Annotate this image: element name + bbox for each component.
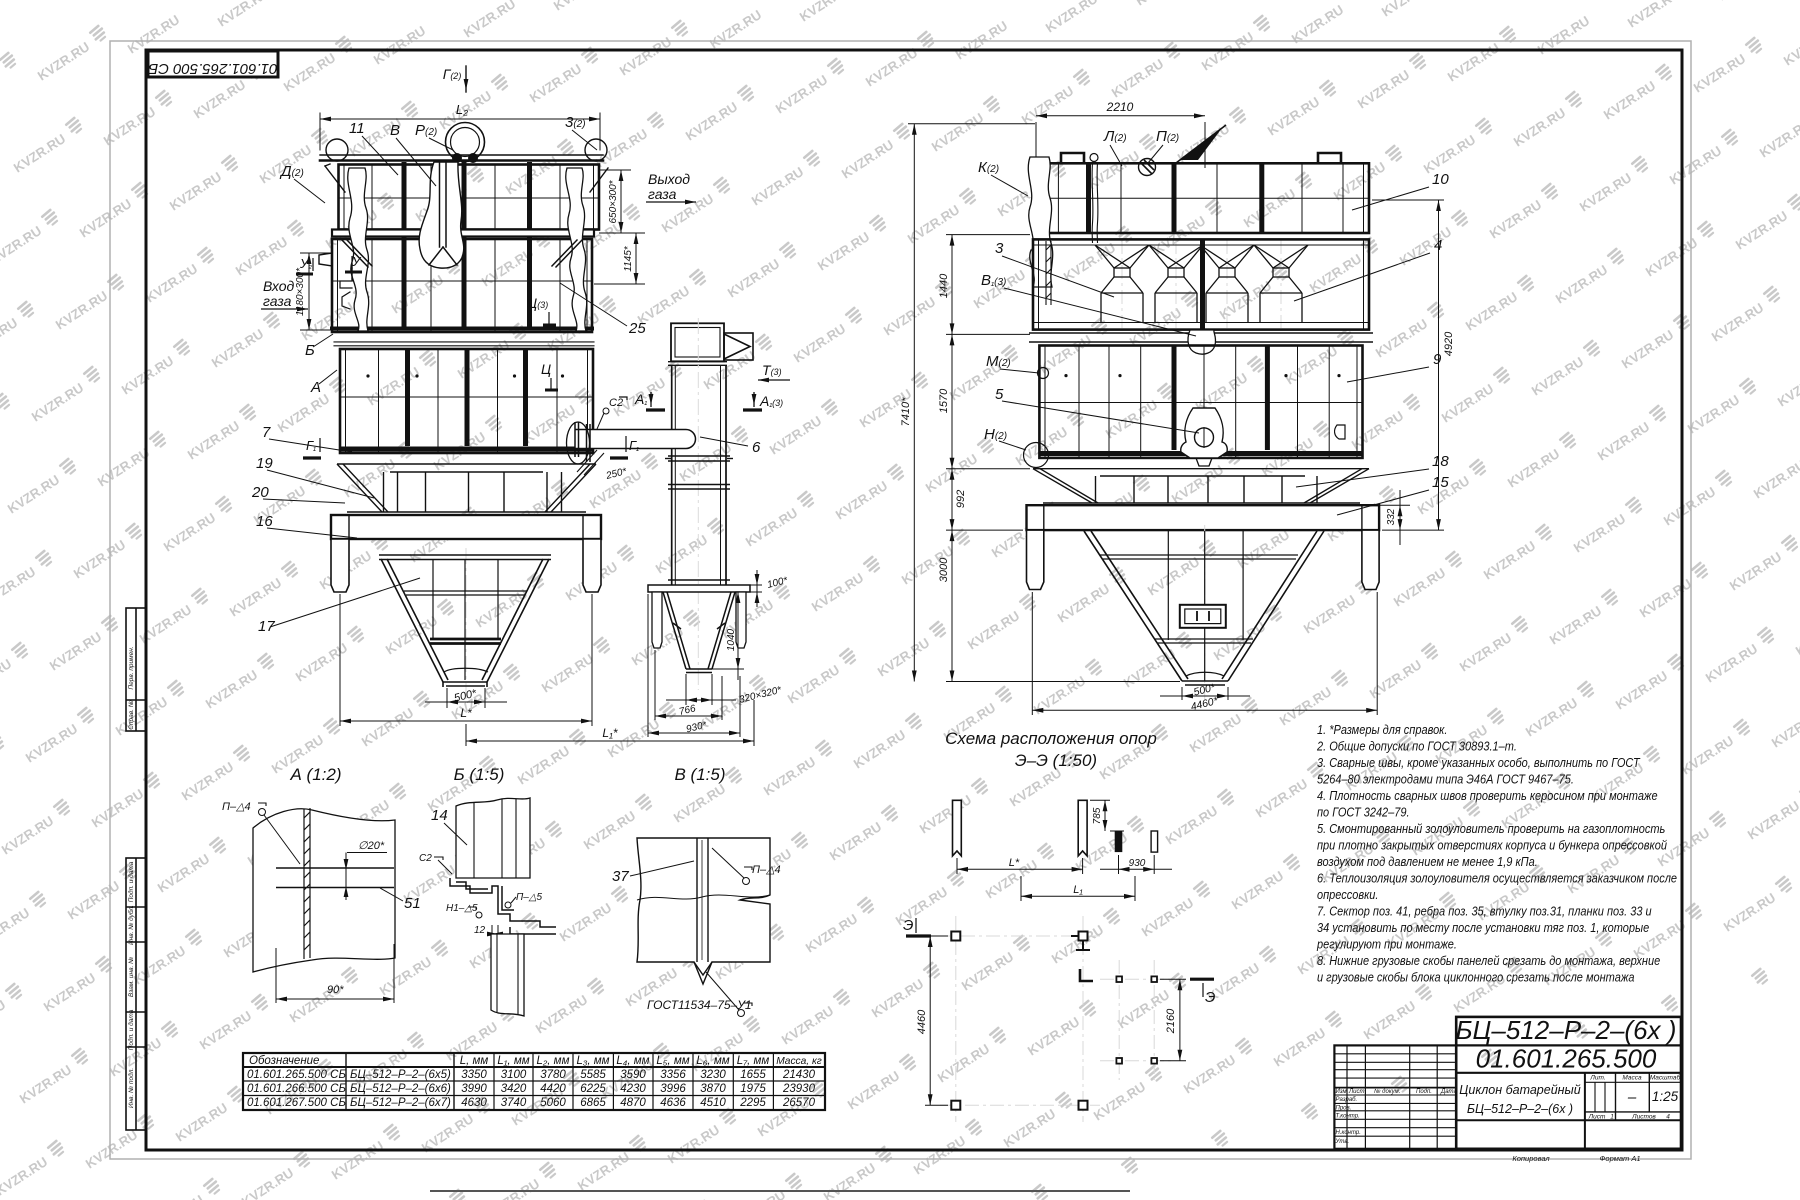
svg-text:3996: 3996 (660, 1083, 686, 1095)
svg-text:Э: Э (903, 917, 913, 934)
svg-text:650×300*: 650×300* (608, 179, 619, 223)
svg-text:L₂: L₂ (456, 102, 468, 117)
svg-text:∅20*: ∅20* (358, 840, 385, 852)
svg-text:Вход: Вход (263, 278, 295, 294)
svg-text:Справ. №: Справ. № (128, 700, 135, 730)
svg-text:№ докум.: № докум. (1374, 1088, 1400, 1095)
svg-text:01.601.265.500 СБ: 01.601.265.500 СБ (247, 1069, 346, 1081)
svg-text:Масса: Масса (1622, 1075, 1642, 1082)
svg-text:при плотно закрытых отверстиях: при плотно закрытых отверстиях корпуса и… (1317, 838, 1667, 853)
svg-text:5264–80 электродами типа Э46А: 5264–80 электродами типа Э46А ГОСТ 9467–… (1317, 772, 1574, 787)
svg-text:26570: 26570 (782, 1097, 816, 1109)
svg-text:3350: 3350 (461, 1069, 487, 1081)
svg-text:01.601.266.500 СБ: 01.601.266.500 СБ (247, 1083, 346, 1095)
svg-text:3356: 3356 (660, 1069, 686, 1081)
svg-text:9: 9 (1433, 351, 1442, 368)
svg-text:Подп. и дата: Подп. и дата (127, 1009, 135, 1050)
svg-text:Б (1:5): Б (1:5) (454, 765, 505, 784)
svg-text:4920: 4920 (1443, 331, 1455, 356)
svg-text:Схема расположения опор: Схема расположения опор (945, 729, 1157, 748)
svg-text:Копировал: Копировал (1512, 1154, 1550, 1163)
svg-text:4230: 4230 (620, 1083, 646, 1095)
svg-text:Разраб.: Разраб. (1336, 1097, 1358, 1103)
svg-text:БЦ–512–Р–2–(6х7): БЦ–512–Р–2–(6х7) (350, 1097, 451, 1109)
svg-text:2295: 2295 (739, 1097, 766, 1109)
svg-text:L₄, мм: L₄, мм (616, 1055, 649, 1067)
svg-text:Инв. № дубл.: Инв. № дубл. (127, 905, 135, 945)
svg-text:1570: 1570 (938, 388, 950, 413)
svg-text:5: 5 (995, 386, 1004, 403)
svg-text:7: 7 (262, 424, 271, 441)
svg-text:18: 18 (1432, 453, 1449, 470)
svg-text:12: 12 (474, 925, 486, 936)
svg-text:25: 25 (628, 320, 646, 337)
svg-text:4. Плотность сварных швов про: 4. Плотность сварных швов проверить керо… (1317, 788, 1658, 803)
svg-text:21430: 21430 (782, 1069, 816, 1081)
svg-text:19: 19 (256, 455, 273, 472)
svg-text:П–△4: П–△4 (222, 801, 251, 813)
svg-text:5. Смонтированный золоуловите: 5. Смонтированный золоуловитель проверит… (1317, 821, 1665, 836)
svg-text:20: 20 (251, 484, 269, 501)
svg-text:3. Сварные швы, кроме указанн: 3. Сварные швы, кроме указанных особо, в… (1317, 755, 1640, 770)
svg-text:332: 332 (1386, 508, 1397, 525)
svg-text:газа: газа (648, 186, 677, 202)
svg-text:14: 14 (431, 807, 448, 824)
svg-text:регулируют при монтаже.: регулируют при монтаже. (1316, 937, 1457, 952)
svg-text:3: 3 (995, 240, 1004, 257)
svg-text:Лист: Лист (1588, 1114, 1606, 1121)
svg-text:2160: 2160 (1165, 1008, 1177, 1034)
svg-text:1145*: 1145* (623, 245, 634, 272)
svg-text:Подп. и дата: Подп. и дата (127, 861, 135, 902)
svg-text:А (1:2): А (1:2) (289, 765, 341, 784)
svg-text:4510: 4510 (700, 1097, 726, 1109)
svg-text:Дата: Дата (1440, 1089, 1457, 1095)
svg-text:С2: С2 (609, 397, 623, 409)
svg-text:ГОСТ11534–75–У1: ГОСТ11534–75–У1 (647, 998, 752, 1012)
svg-text:L₃, мм: L₃, мм (576, 1055, 609, 1067)
svg-text:Масштаб: Масштаб (1650, 1074, 1681, 1082)
svg-text:А: А (310, 379, 321, 396)
svg-text:6. Теплоизоляция золоуловител: 6. Теплоизоляция золоуловителя осуществл… (1317, 871, 1677, 886)
svg-text:1: 1 (1610, 1114, 1614, 1121)
svg-text:3590: 3590 (620, 1069, 646, 1081)
svg-text:Б: Б (305, 342, 315, 359)
svg-text:L₆, мм: L₆, мм (696, 1055, 729, 1067)
svg-text:БЦ–512–Р–2–(6х6): БЦ–512–Р–2–(6х6) (350, 1083, 451, 1095)
svg-text:по ГОСТ 3242–79.: по ГОСТ 3242–79. (1317, 805, 1410, 820)
svg-text:01.601.265.500 СБ: 01.601.265.500 СБ (148, 60, 277, 77)
svg-text:7. Сектор поз. 41, ребра поз.: 7. Сектор поз. 41, ребра поз. 35, втулку… (1317, 904, 1652, 919)
svg-text:Э: Э (1205, 989, 1215, 1006)
svg-text:3000: 3000 (938, 557, 950, 582)
svg-text:6: 6 (752, 439, 761, 456)
svg-text:В (1:5): В (1:5) (674, 765, 725, 784)
svg-text:2. Общие допуски по ГОСТ 3089: 2. Общие допуски по ГОСТ 30893.1–m. (1316, 739, 1517, 754)
svg-text:Взам. инв. №: Взам. инв. № (128, 957, 135, 997)
svg-text:Масса, кг: Масса, кг (776, 1056, 822, 1067)
svg-text:L*: L* (1009, 857, 1020, 869)
svg-text:10: 10 (1432, 171, 1449, 188)
svg-text:3780: 3780 (540, 1069, 566, 1081)
svg-text:7410*: 7410* (900, 397, 912, 426)
svg-text:БЦ–512–Р–2–(6х ): БЦ–512–Р–2–(6х ) (1456, 1015, 1677, 1045)
svg-text:1. *Размеры для справок.: 1. *Размеры для справок. (1317, 722, 1447, 737)
svg-text:23930: 23930 (782, 1083, 816, 1095)
svg-text:4460: 4460 (916, 1009, 928, 1034)
svg-text:4870: 4870 (620, 1097, 646, 1109)
svg-text:1655: 1655 (740, 1069, 766, 1081)
svg-text:5060: 5060 (540, 1097, 566, 1109)
svg-text:Э–Э (1:50): Э–Э (1:50) (1015, 751, 1097, 770)
svg-text:Перв. примен.: Перв. примен. (128, 646, 135, 689)
svg-text:Лит.: Лит. (1589, 1075, 1605, 1082)
svg-text:1:25: 1:25 (1652, 1089, 1679, 1104)
svg-text:8. Нижние грузовые скобы пане: 8. Нижние грузовые скобы панелей срезать… (1317, 953, 1661, 968)
svg-text:Формат А1: Формат А1 (1599, 1154, 1640, 1163)
svg-text:Выход: Выход (648, 171, 690, 187)
svg-text:34 установить по месту после: 34 установить по месту после установки т… (1317, 920, 1650, 935)
svg-text:БЦ–512–Р–2–(6х5): БЦ–512–Р–2–(6х5) (350, 1069, 451, 1081)
svg-text:4636: 4636 (660, 1097, 686, 1109)
svg-text:51: 51 (404, 895, 421, 912)
svg-text:3230: 3230 (700, 1069, 726, 1081)
svg-text:1975: 1975 (740, 1083, 766, 1095)
svg-text:С2: С2 (419, 853, 432, 864)
svg-text:В: В (390, 122, 400, 139)
svg-text:Ц: Ц (541, 361, 551, 377)
svg-text:Листов: Листов (1631, 1114, 1656, 1121)
svg-text:Пров.: Пров. (1336, 1106, 1352, 1112)
svg-text:3870: 3870 (700, 1083, 726, 1095)
svg-text:1440: 1440 (938, 273, 950, 298)
svg-text:L₅, мм: L₅, мм (656, 1055, 689, 1067)
svg-text:4420: 4420 (540, 1083, 566, 1095)
svg-text:930: 930 (1129, 858, 1146, 869)
svg-text:6865: 6865 (580, 1097, 606, 1109)
svg-text:1040: 1040 (726, 628, 737, 651)
svg-text:воздухом под давлением не мене: воздухом под давлением не менее 1,9 кПа. (1317, 854, 1538, 869)
svg-text:L₁*: L₁* (602, 726, 617, 740)
svg-text:37: 37 (612, 868, 629, 885)
svg-text:01.601.267.500 СБ: 01.601.267.500 СБ (247, 1097, 346, 1109)
svg-text:Обозначение: Обозначение (249, 1055, 319, 1067)
svg-text:Циклон батарейный: Циклон батарейный (1459, 1083, 1580, 1097)
svg-text:опрессовки.: опрессовки. (1317, 887, 1378, 902)
svg-text:–: – (1627, 1089, 1637, 1106)
svg-text:Инв. № подл.: Инв. № подл. (127, 1068, 135, 1109)
svg-text:L₇, мм: L₇, мм (737, 1055, 770, 1067)
svg-text:Н.контр.: Н.контр. (1336, 1130, 1361, 1136)
svg-text:и грузовые скобы блока циклонн: и грузовые скобы блока циклонного срезат… (1317, 970, 1635, 985)
svg-text:3420: 3420 (501, 1083, 527, 1095)
svg-text:5585: 5585 (580, 1069, 606, 1081)
svg-text:3990: 3990 (461, 1083, 487, 1095)
svg-text:газа: газа (263, 293, 292, 309)
svg-text:L₂, мм: L₂, мм (537, 1055, 570, 1067)
svg-text:15: 15 (1432, 474, 1449, 491)
svg-text:П–△4: П–△4 (752, 864, 781, 876)
svg-text:4: 4 (1666, 1114, 1670, 1121)
svg-text:01.601.265.500: 01.601.265.500 (1476, 1044, 1657, 1074)
svg-text:90*: 90* (327, 984, 344, 996)
svg-text:Подп.: Подп. (1416, 1089, 1432, 1095)
svg-text:Утв.: Утв. (1335, 1139, 1350, 1145)
svg-text:11: 11 (349, 120, 365, 137)
svg-text:3740: 3740 (501, 1097, 527, 1109)
svg-text:3100: 3100 (501, 1069, 527, 1081)
svg-text:Изм: Изм (1336, 1089, 1347, 1095)
svg-text:L, мм: L, мм (460, 1055, 489, 1067)
svg-text:785: 785 (1092, 807, 1103, 824)
svg-text:2210: 2210 (1106, 100, 1134, 114)
svg-text:Т.контр.: Т.контр. (1336, 1114, 1360, 1120)
svg-text:L*: L* (460, 706, 472, 720)
svg-text:П–△5: П–△5 (516, 892, 542, 903)
svg-text:6225: 6225 (580, 1083, 606, 1095)
svg-text:Лист: Лист (1348, 1089, 1364, 1095)
svg-text:L₁, мм: L₁, мм (497, 1055, 529, 1067)
svg-text:992: 992 (955, 490, 967, 508)
svg-text:L₁: L₁ (1073, 884, 1083, 896)
svg-text:16: 16 (256, 513, 273, 530)
svg-text:4630: 4630 (461, 1097, 487, 1109)
svg-text:Н1–△5: Н1–△5 (446, 903, 478, 914)
svg-text:БЦ–512–Р–2–(6х ): БЦ–512–Р–2–(6х ) (1467, 1102, 1573, 1116)
